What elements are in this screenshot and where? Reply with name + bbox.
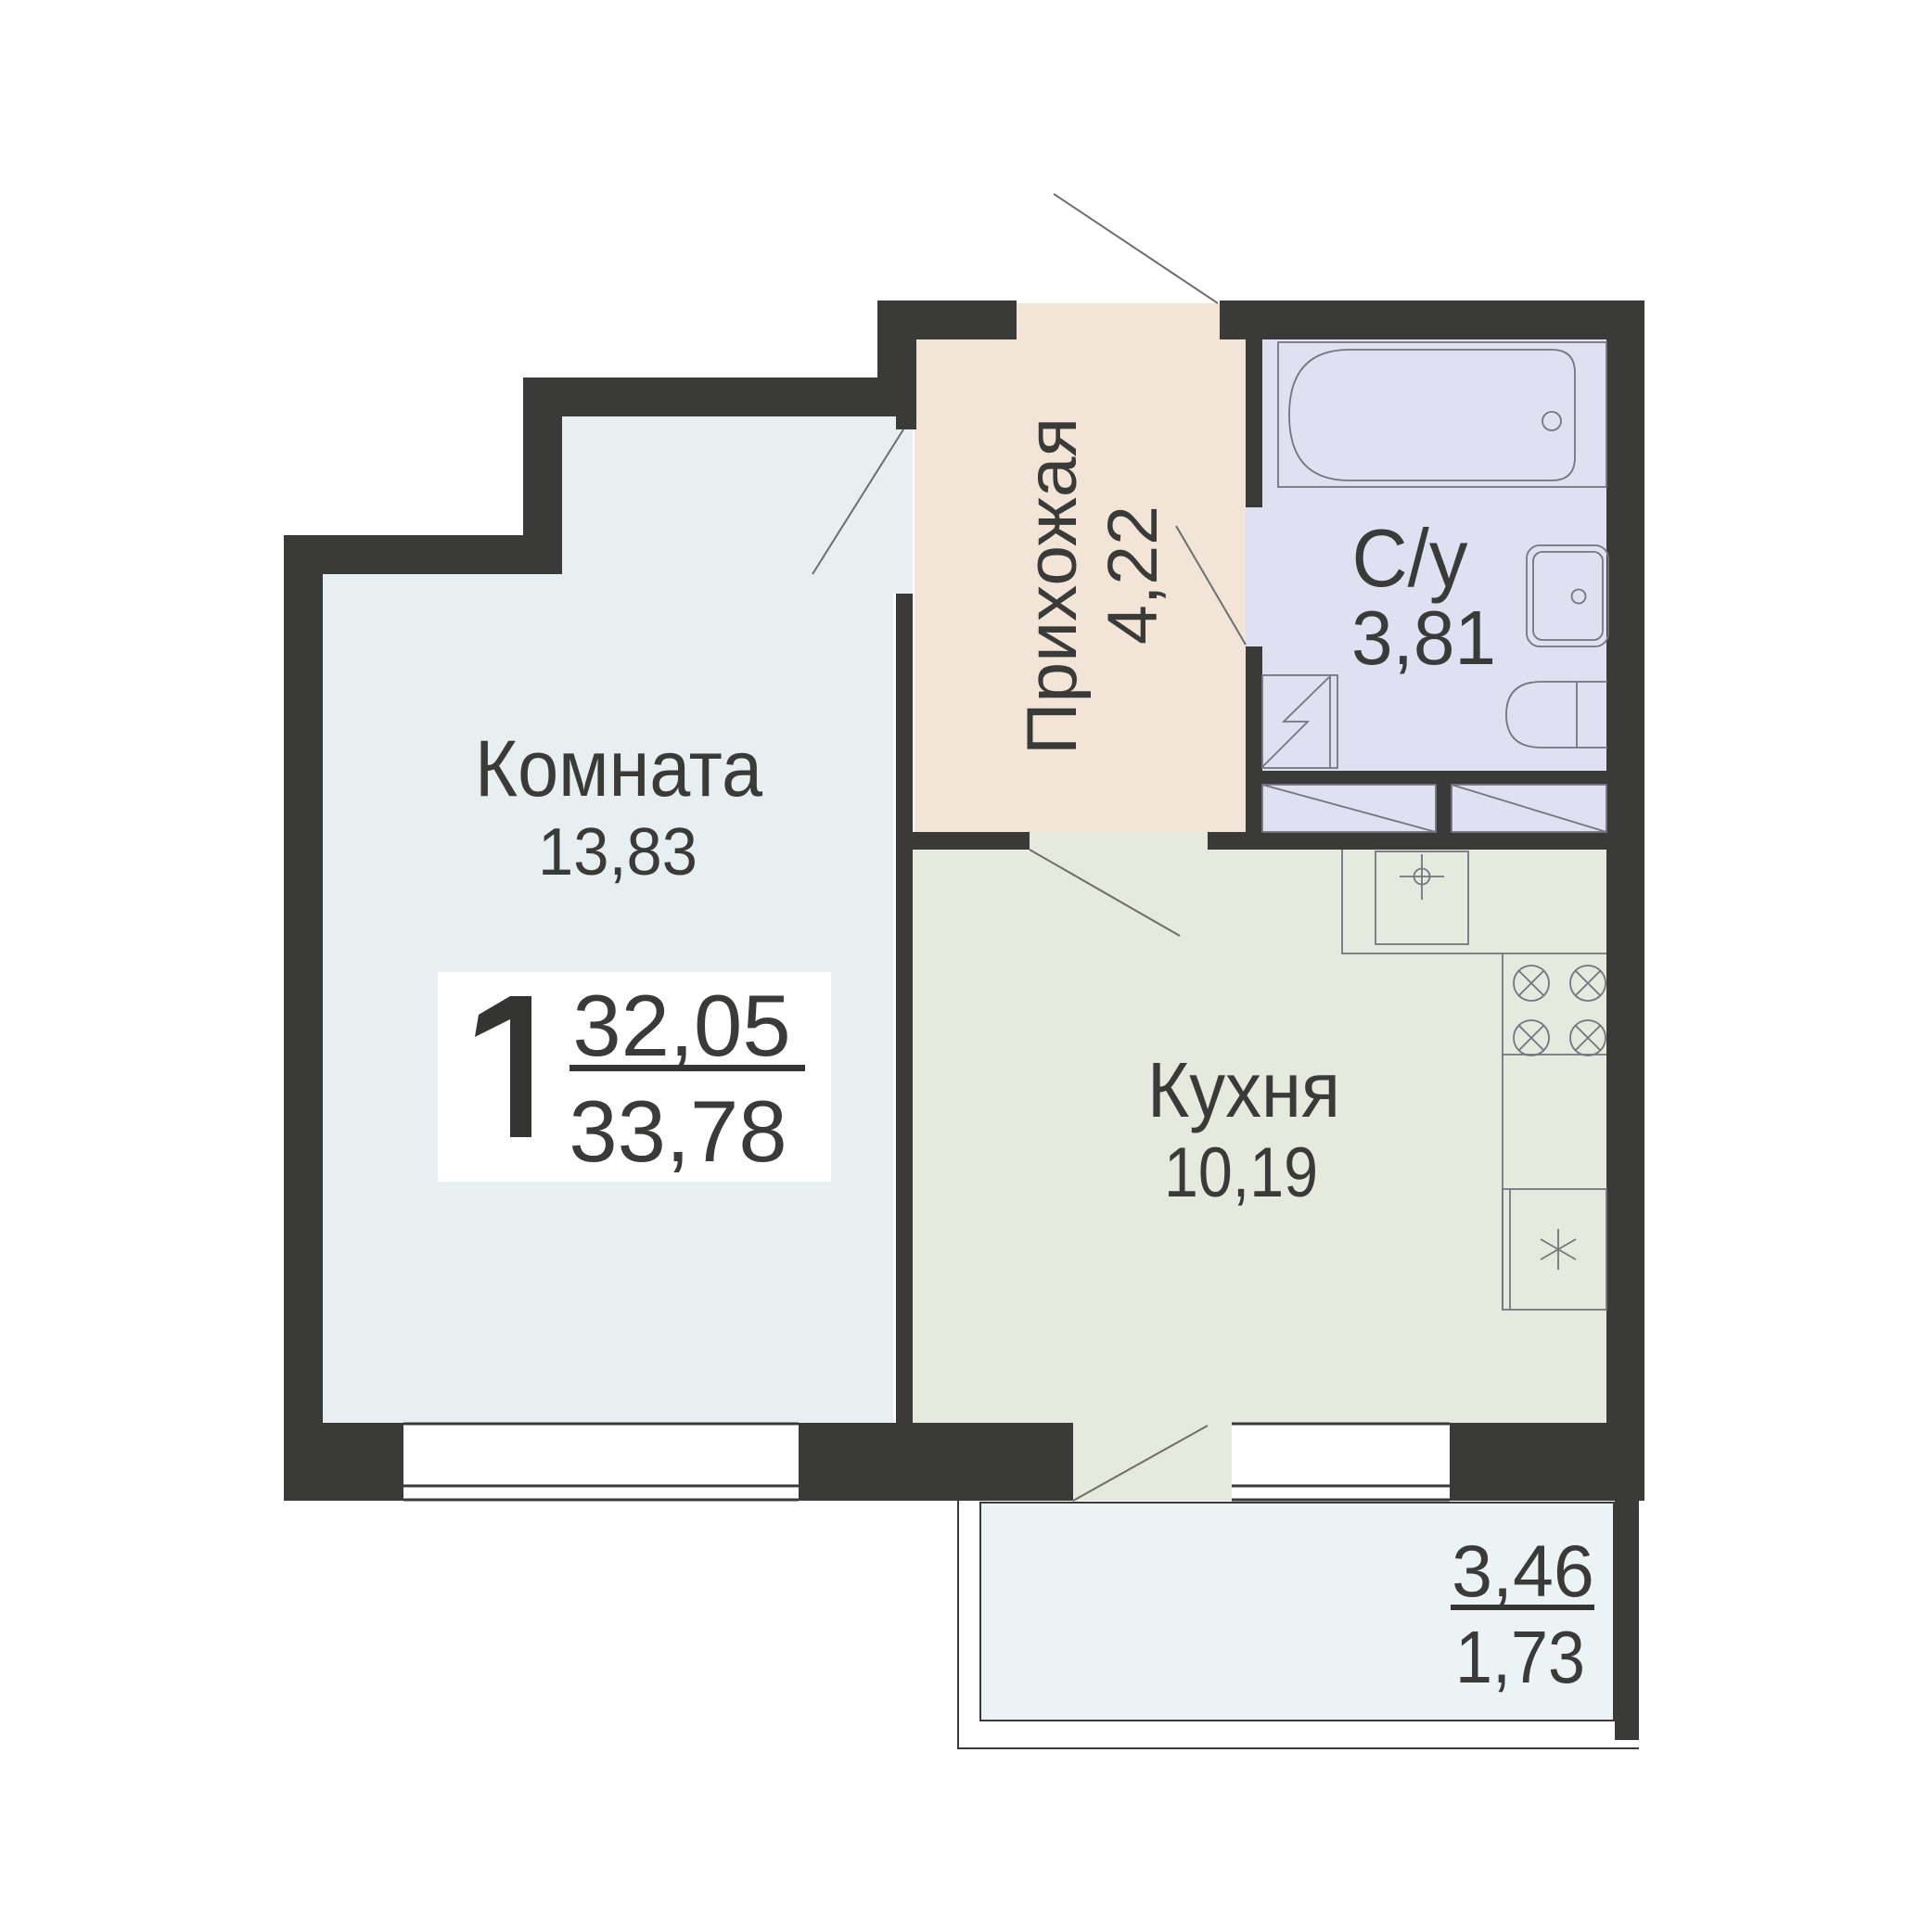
svg-text:3,81: 3,81: [1351, 595, 1496, 681]
svg-text:13,83: 13,83: [538, 815, 697, 889]
svg-text:4,22: 4,22: [1094, 505, 1172, 645]
svg-text:32,05: 32,05: [572, 977, 790, 1074]
svg-text:10,19: 10,19: [1164, 1133, 1318, 1212]
svg-text:3,46: 3,46: [1452, 1529, 1594, 1612]
svg-text:1,73: 1,73: [1455, 1616, 1585, 1698]
svg-text:Кухня: Кухня: [1147, 1046, 1340, 1133]
svg-text:Комната: Комната: [475, 724, 762, 813]
svg-text:33,78: 33,78: [569, 1082, 787, 1180]
svg-text:С/у: С/у: [1352, 512, 1468, 604]
svg-text:Прихожая: Прихожая: [1013, 417, 1092, 755]
